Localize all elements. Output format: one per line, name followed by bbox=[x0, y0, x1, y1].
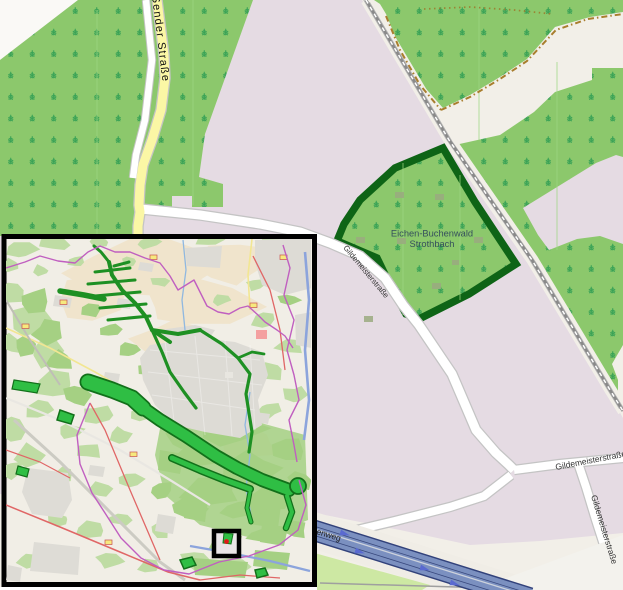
svg-text:Strothbach: Strothbach bbox=[410, 239, 455, 249]
svg-text:Eichen-Buchenwald: Eichen-Buchenwald bbox=[391, 229, 473, 239]
